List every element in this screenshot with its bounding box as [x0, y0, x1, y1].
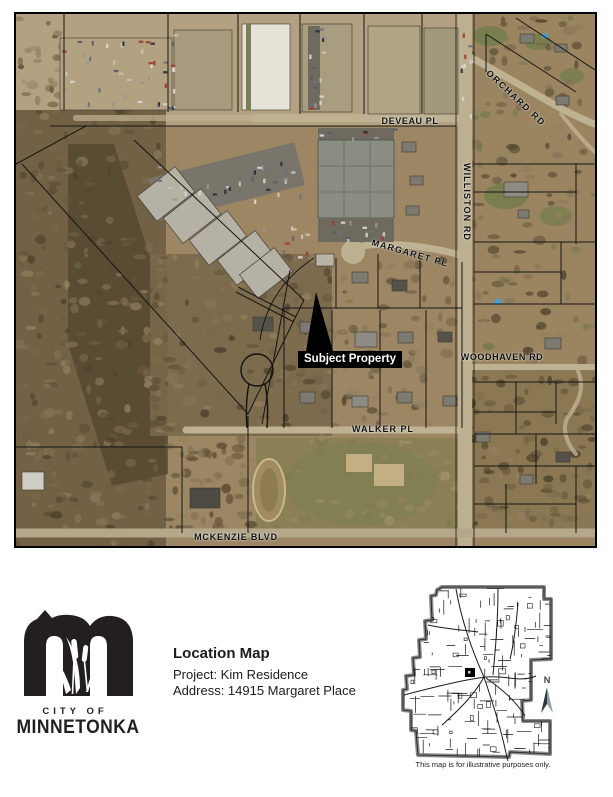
street-label-woodhaven-rd: WOODHAVEN RD — [461, 352, 544, 362]
north-arrow-icon — [541, 687, 553, 713]
city-inset-map: N — [398, 583, 566, 763]
map-title: Location Map — [173, 645, 356, 662]
map-info-block: Location Map Project: Kim Residence Addr… — [173, 645, 356, 699]
street-label-williston-rd: WILLISTON RD — [462, 163, 472, 241]
street-label-walker-pl: WALKER PL — [352, 424, 414, 434]
logo-city-of-text: CITY OF — [42, 706, 107, 717]
subject-property-label: Subject Property — [298, 351, 402, 368]
logo-city-name-text: MINNETONKA — [17, 717, 140, 738]
project-line: Project: Kim Residence — [173, 667, 356, 683]
address-line: Address: 14915 Margaret Place — [173, 683, 356, 699]
inset-caption: This map is for illustrative purposes on… — [390, 760, 576, 769]
north-label: N — [544, 675, 551, 686]
street-label-deveau-pl: DEVEAU PL — [382, 116, 439, 126]
aerial-map: DEVEAU PL ORCHARD RD WILLISTON RD MARGAR… — [14, 12, 597, 548]
location-map-page: DEVEAU PL ORCHARD RD WILLISTON RD MARGAR… — [0, 0, 613, 797]
street-label-mckenzie-blvd: MCKENZIE BLVD — [194, 532, 278, 542]
logo-cattails — [47, 637, 107, 694]
city-of-minnetonka-logo: CITY OF MINNETONKA — [14, 606, 146, 738]
